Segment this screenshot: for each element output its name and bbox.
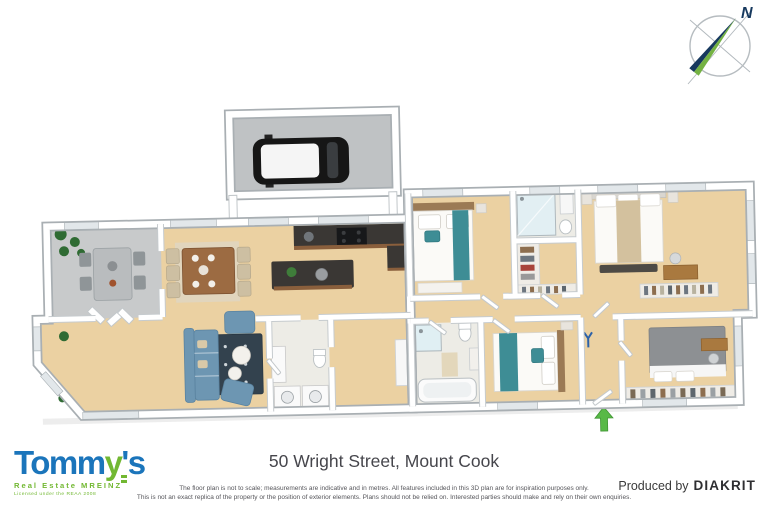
bed3-pillow: [531, 348, 543, 362]
produced-by: Produced by DIAKRIT: [618, 478, 756, 493]
car: [252, 133, 349, 188]
disclaimer-line2: This is not an exact replica of the prop…: [137, 494, 631, 501]
vanity1: [560, 194, 573, 214]
nightstand3: [561, 322, 573, 330]
garage: [227, 111, 397, 226]
master-wardrobe-items: [644, 285, 712, 296]
compass-north-label: N: [741, 5, 753, 23]
master-throw: [616, 200, 641, 263]
master-desk-chair: [670, 253, 681, 264]
bedroom4-chair: [709, 353, 719, 363]
master-nightstand-left: [582, 193, 592, 204]
master-nightstand-right: [668, 191, 678, 202]
compass-needle-green: [694, 18, 736, 76]
floor-plan: [0, 94, 768, 450]
bedroom4-desk: [701, 338, 727, 351]
master-bench: [599, 264, 657, 273]
side-table: [228, 367, 241, 380]
bed2-runner: [452, 210, 470, 280]
nightstand2: [476, 204, 486, 213]
island-bowl: [316, 268, 328, 280]
outdoor-table: [93, 248, 132, 301]
address-block: 50 Wright Street, Mount Cook: [0, 451, 768, 472]
bath-mat: [441, 352, 458, 376]
toilet1: [559, 220, 571, 234]
car-windshield: [327, 142, 339, 178]
stove: [337, 227, 367, 245]
bed2-pillow: [425, 231, 440, 242]
armchair-top: [224, 311, 254, 334]
bed2-bench: [418, 282, 462, 293]
bed3-headboard: [557, 330, 565, 392]
producer-name: DIAKRIT: [694, 478, 756, 493]
dining-area: [166, 241, 251, 303]
disclaimer-line1: The floor plan is not to scale; measurem…: [179, 485, 589, 492]
compass: N: [680, 4, 764, 92]
coffee-table: [232, 346, 250, 364]
dining-table: [182, 247, 235, 294]
car-roof: [261, 143, 320, 178]
produced-by-label: Produced by: [618, 479, 688, 493]
bed3-runner: [499, 333, 518, 391]
property-address: 50 Wright Street, Mount Cook: [269, 451, 499, 471]
master-desk: [664, 265, 698, 280]
compass-needle-dark: [689, 18, 736, 72]
floorplan-page: N: [0, 0, 768, 512]
